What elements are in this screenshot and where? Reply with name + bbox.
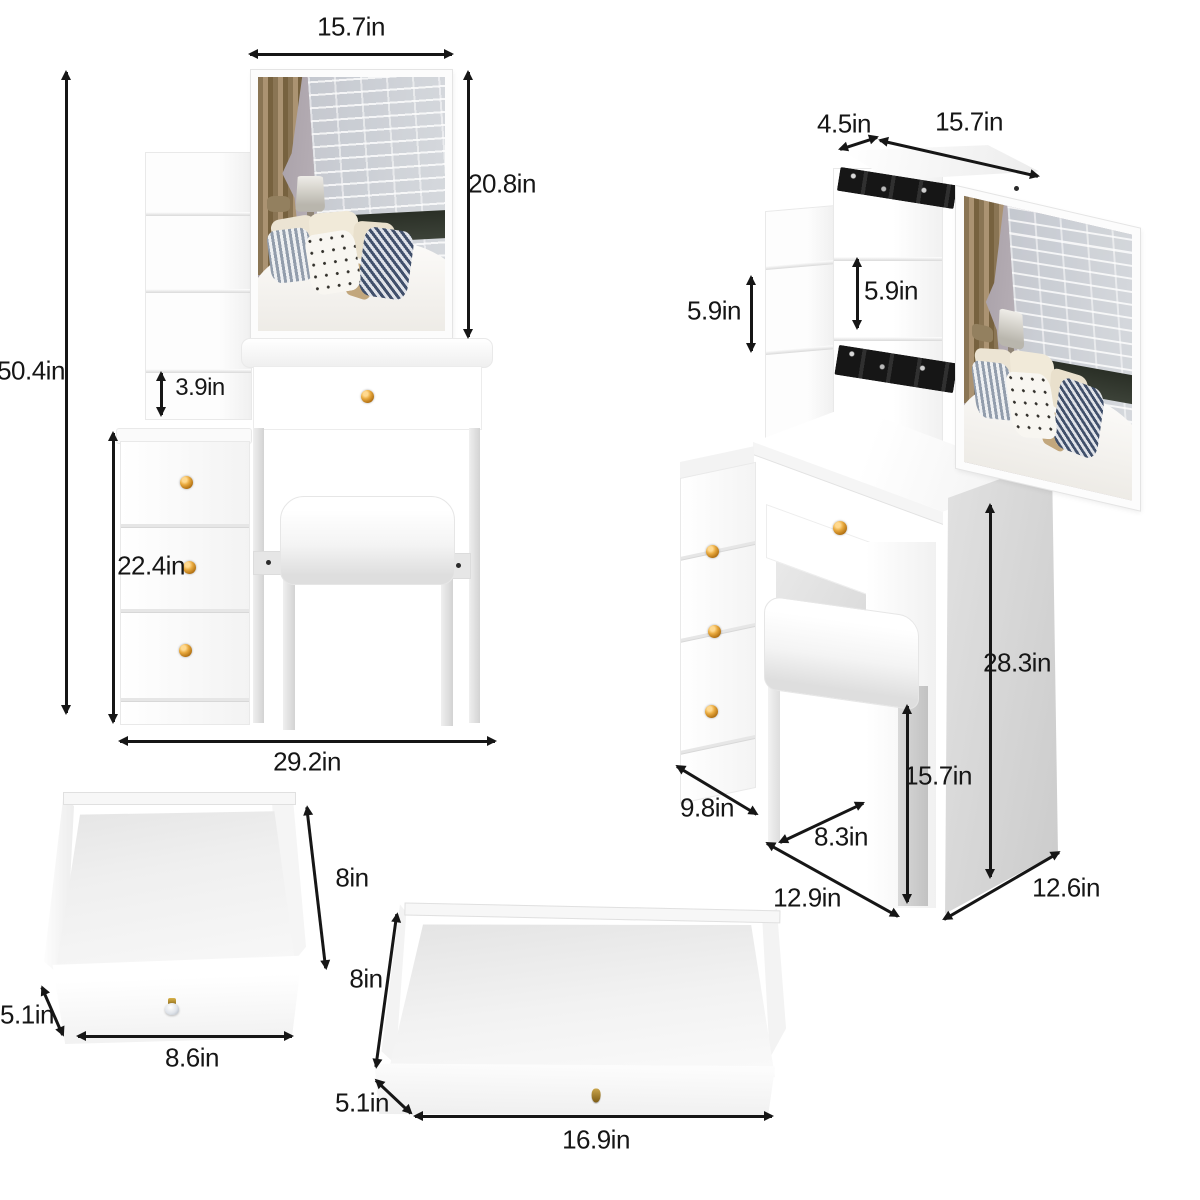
dim-large-drawer-depth: 8in [349,964,382,995]
large-drawer-front [370,1058,775,1122]
dim-large-drawer-width: 16.9in [562,1125,630,1156]
large-drawer-view: 8in 5.1in 16.9in [0,0,1200,1200]
arrow-large-drawer-width [415,1115,772,1118]
dim-large-drawer-height: 5.1in [335,1088,389,1119]
large-drawer-back-rim [404,902,780,923]
large-drawer-interior [389,911,778,1077]
diagram-canvas: 15.7in 20.8in 50.4in 3.9in 22.4in 29.2in [0,0,1200,1200]
